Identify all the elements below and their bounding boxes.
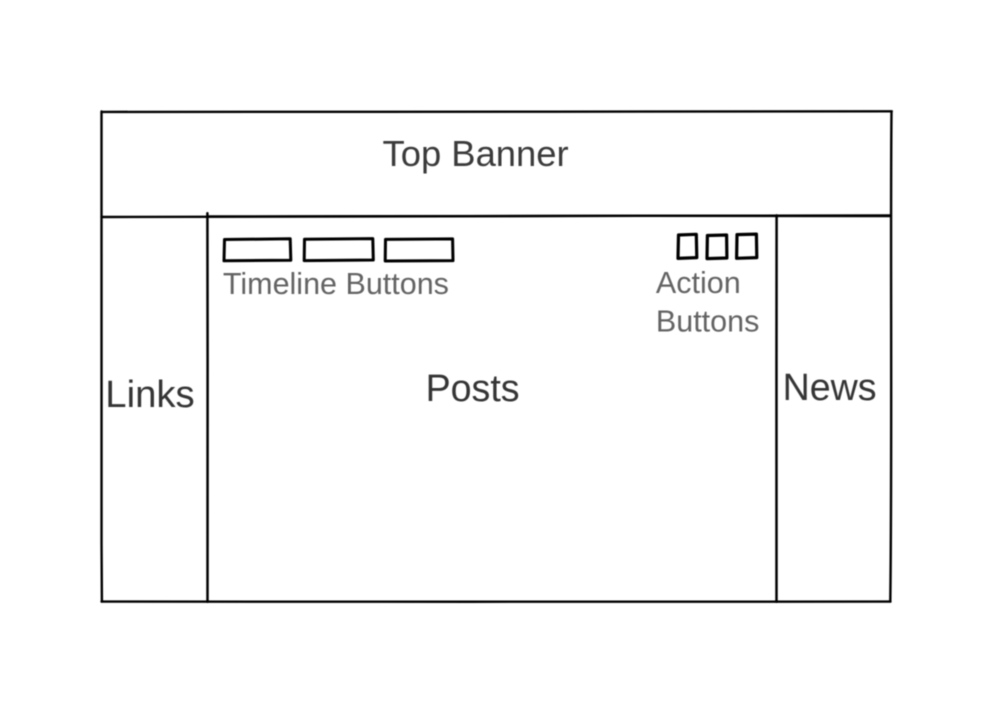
svg-text:Posts: Posts — [426, 367, 520, 409]
svg-text:Links: Links — [105, 373, 194, 416]
svg-text:News: News — [783, 366, 877, 408]
svg-text:Buttons: Buttons — [656, 305, 759, 339]
svg-text:Top Banner: Top Banner — [383, 133, 569, 174]
svg-text:Timeline Buttons: Timeline Buttons — [223, 267, 449, 301]
svg-text:Action: Action — [656, 266, 741, 300]
